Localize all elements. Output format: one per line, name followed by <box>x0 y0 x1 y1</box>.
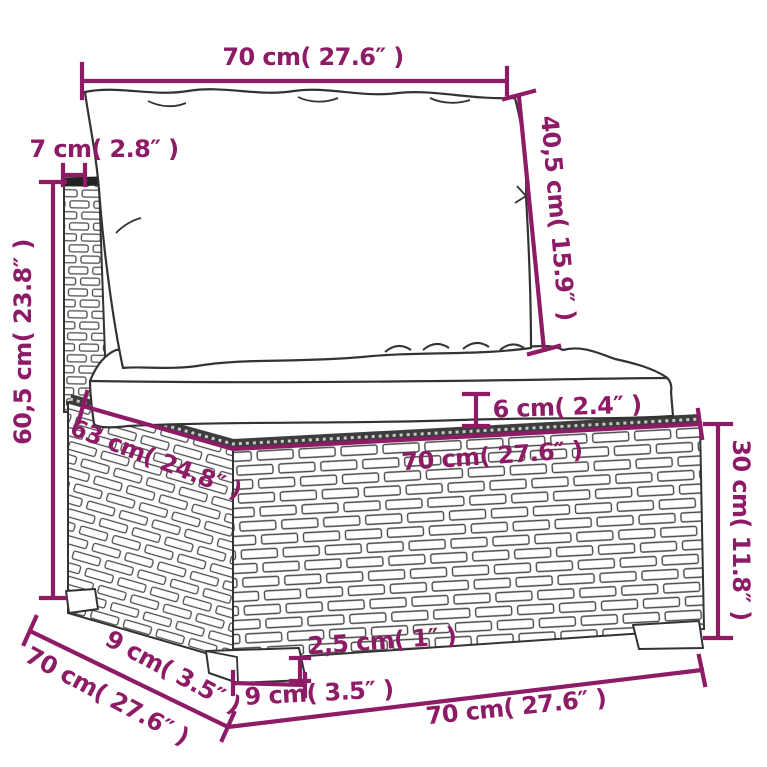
dim-label-base-height: 30 cm( 11.8″ ) <box>727 439 755 620</box>
dim-label-cushion-thickness: 6 cm( 2.4″ ) <box>492 390 642 423</box>
front-right-foot <box>633 621 703 649</box>
back-left-foot <box>66 589 98 613</box>
post-top-cap <box>62 177 101 186</box>
back-cushion <box>85 89 531 368</box>
dim-label-back-depth: 7 cm( 2.8″ ) <box>30 135 179 163</box>
dim-line-total-height <box>41 182 65 598</box>
dim-label-total-height: 60,5 cm( 23.8″ ) <box>9 239 37 445</box>
dimension-diagram: 70 cm( 27.6″ ) 7 cm( 2.8″ ) 40,5 cm( 15.… <box>0 0 767 767</box>
dim-label-top-width: 70 cm( 27.6″ ) <box>222 43 403 71</box>
base-box <box>68 399 704 661</box>
